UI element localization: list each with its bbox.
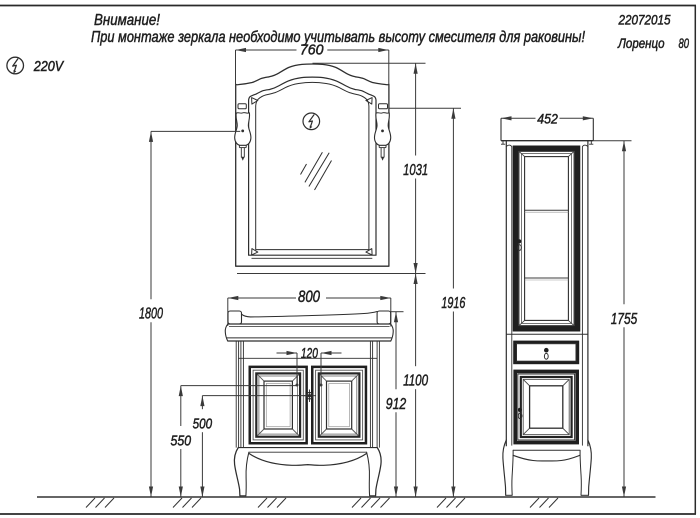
- svg-text:220V: 220V: [33, 59, 65, 75]
- svg-text:1800: 1800: [139, 306, 163, 323]
- svg-text:1916: 1916: [441, 295, 465, 312]
- svg-text:760: 760: [300, 43, 324, 59]
- svg-text:Внимание!: Внимание!: [94, 12, 160, 29]
- svg-text:1100: 1100: [403, 373, 428, 390]
- svg-text:22072015: 22072015: [618, 12, 671, 27]
- svg-text:912: 912: [386, 396, 407, 413]
- svg-text:При монтаже зеркала необходимо: При монтаже зеркала необходимо учитывать…: [91, 29, 585, 46]
- svg-text:550: 550: [171, 433, 192, 450]
- svg-text:120: 120: [301, 345, 318, 362]
- svg-text:80: 80: [679, 36, 690, 51]
- svg-text:1031: 1031: [403, 162, 428, 179]
- svg-text:1755: 1755: [611, 311, 637, 328]
- svg-text:Лоренцо: Лоренцо: [617, 36, 665, 51]
- svg-text:500: 500: [193, 416, 213, 433]
- svg-text:800: 800: [298, 287, 320, 306]
- svg-text:452: 452: [537, 110, 558, 126]
